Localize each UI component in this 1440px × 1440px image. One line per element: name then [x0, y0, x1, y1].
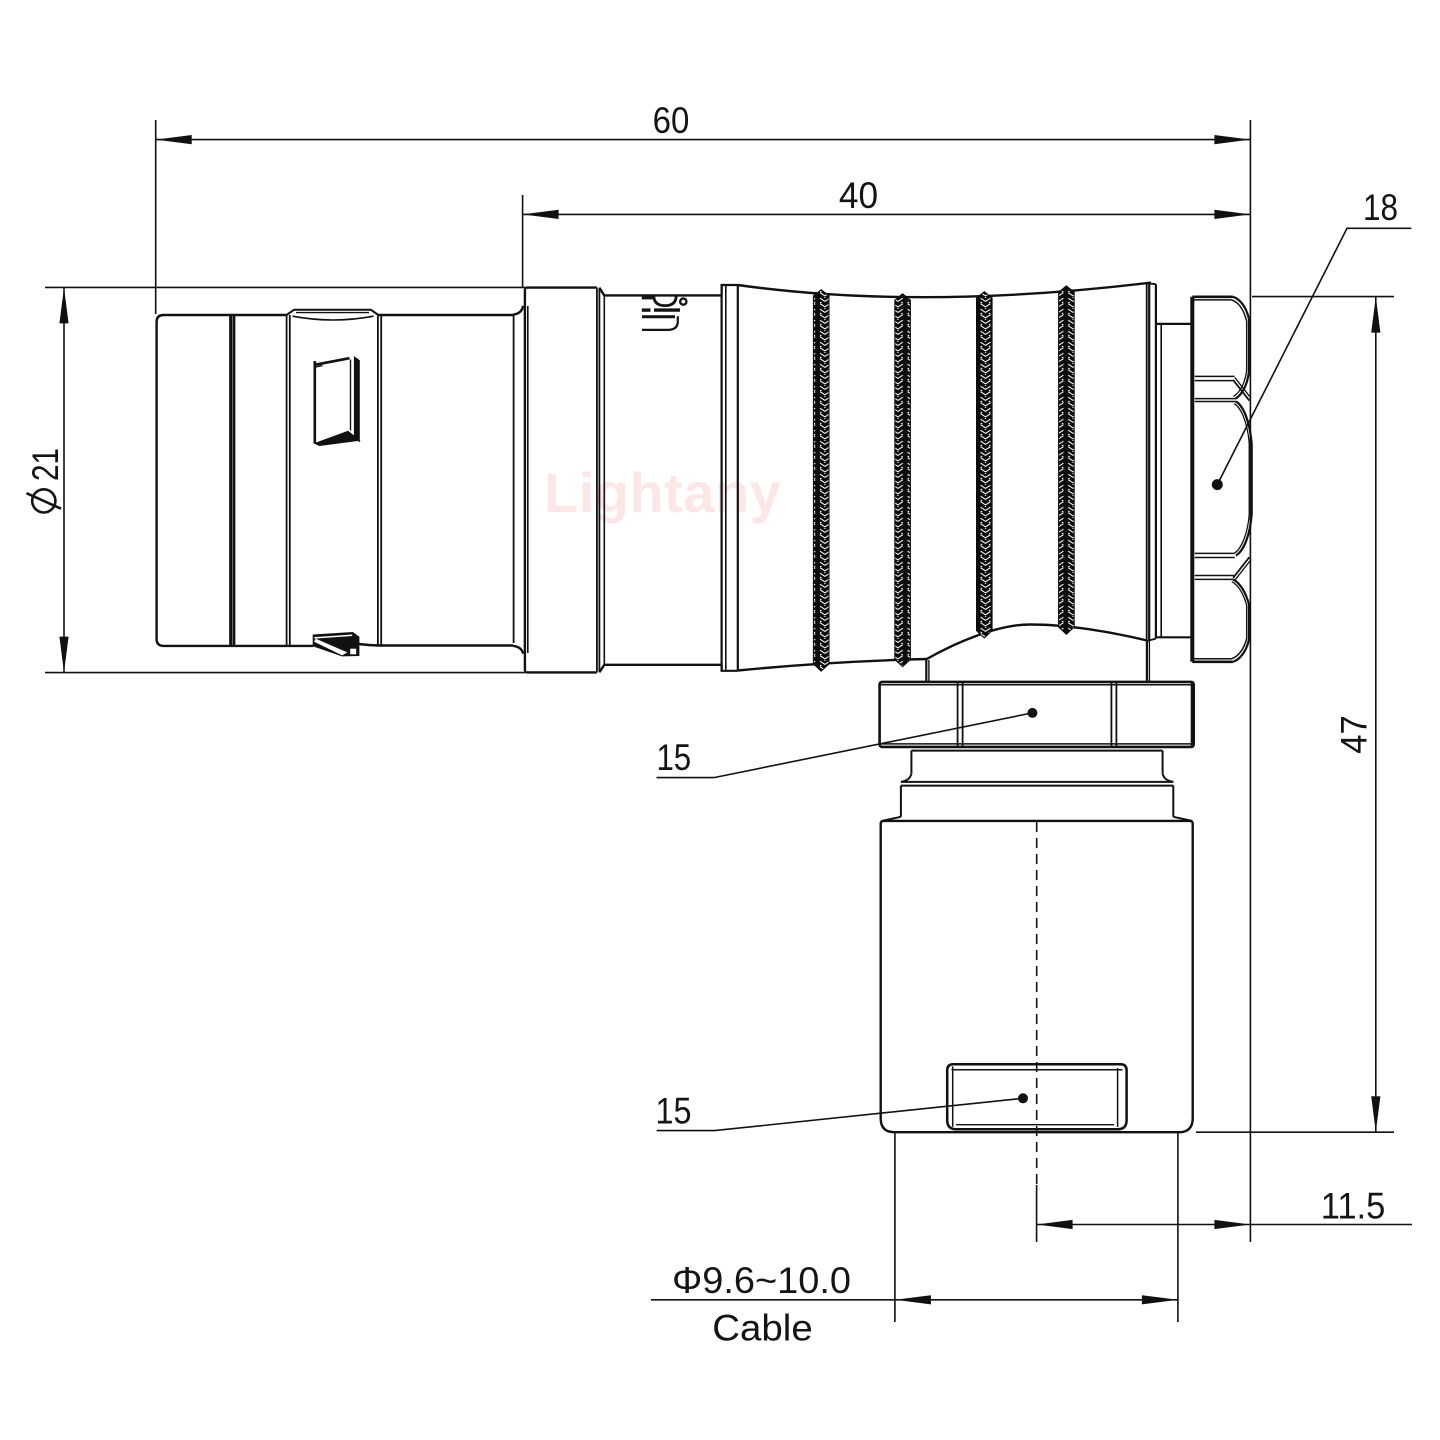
svg-text:40: 40 [839, 175, 878, 216]
svg-text:Cable: Cable [712, 1308, 813, 1349]
svg-text:47: 47 [1334, 715, 1375, 753]
svg-text:21: 21 [25, 448, 66, 481]
svg-text:Lightany: Lightany [544, 461, 781, 524]
svg-text:15: 15 [656, 737, 691, 778]
svg-text:60: 60 [653, 100, 690, 141]
svg-text:11.5: 11.5 [1321, 1186, 1386, 1227]
svg-text:15: 15 [656, 1090, 692, 1131]
svg-text:Φ9.6~10.0: Φ9.6~10.0 [672, 1260, 851, 1301]
svg-text:18: 18 [1363, 187, 1398, 228]
